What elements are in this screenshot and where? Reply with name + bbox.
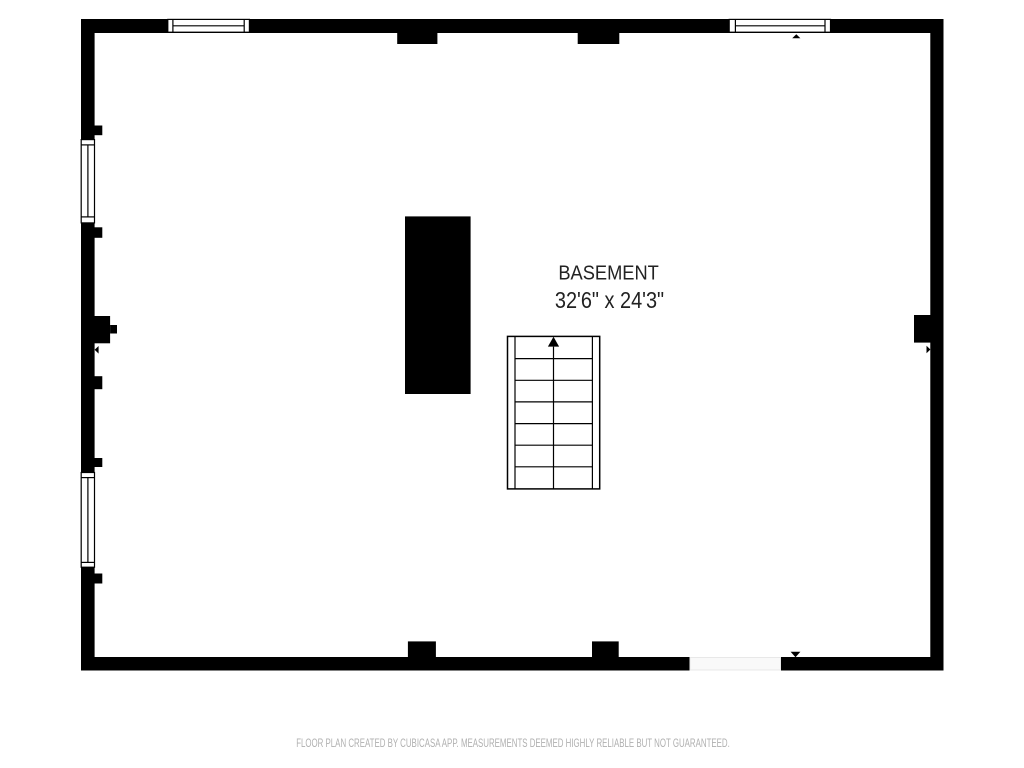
svg-text:FLOOR PLAN CREATED BY CUBICASA: FLOOR PLAN CREATED BY CUBICASA APP. MEAS…	[296, 736, 730, 750]
svg-text:BASEMENT: BASEMENT	[558, 262, 659, 285]
svg-text:32'6" x 24'3": 32'6" x 24'3"	[555, 287, 664, 313]
